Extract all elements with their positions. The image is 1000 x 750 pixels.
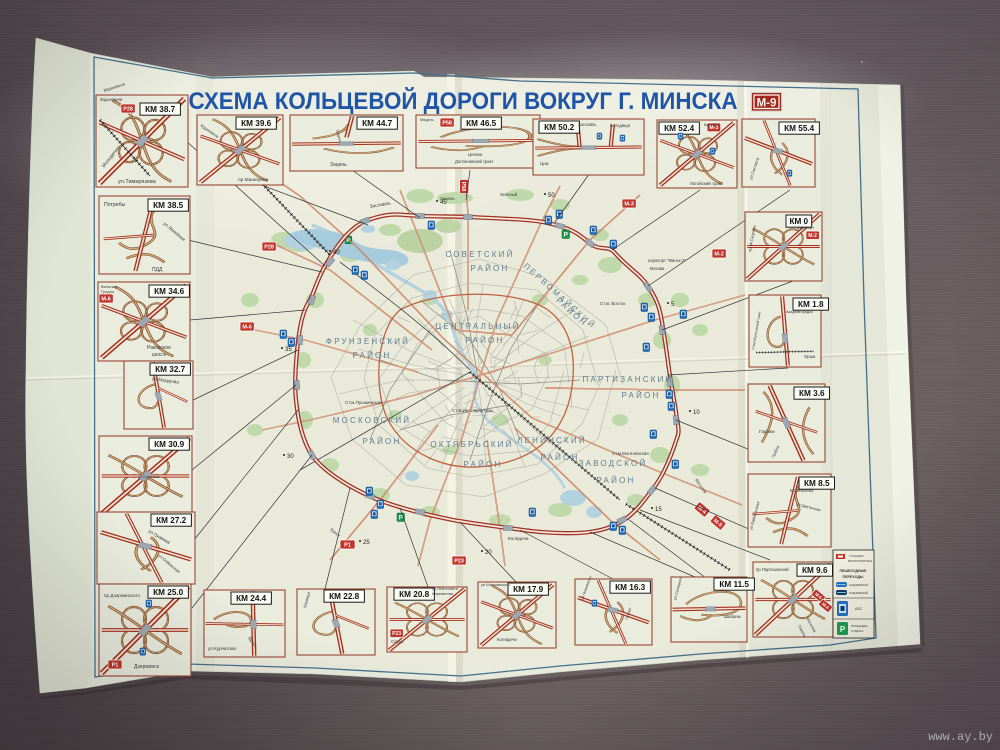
svg-text:www.ay.by: www.ay.by — [928, 730, 993, 744]
